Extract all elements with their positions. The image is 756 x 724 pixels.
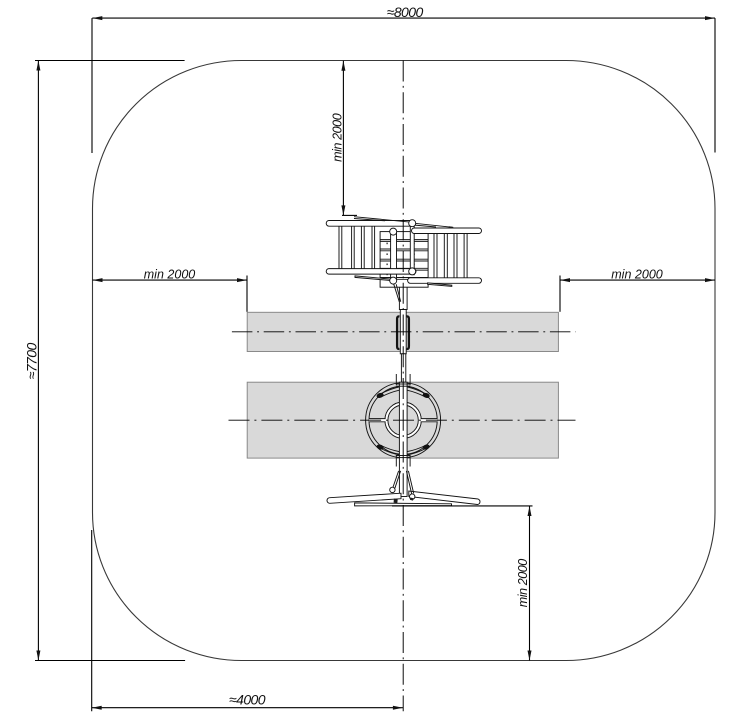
svg-text:min 2000: min 2000 xyxy=(516,559,530,608)
svg-text:≈7700: ≈7700 xyxy=(23,343,39,380)
svg-text:min 2000: min 2000 xyxy=(330,113,344,162)
svg-text:min 2000: min 2000 xyxy=(611,267,663,281)
svg-text:≈8000: ≈8000 xyxy=(387,4,424,20)
svg-text:≈4000: ≈4000 xyxy=(229,692,266,708)
svg-text:min 2000: min 2000 xyxy=(144,267,196,281)
